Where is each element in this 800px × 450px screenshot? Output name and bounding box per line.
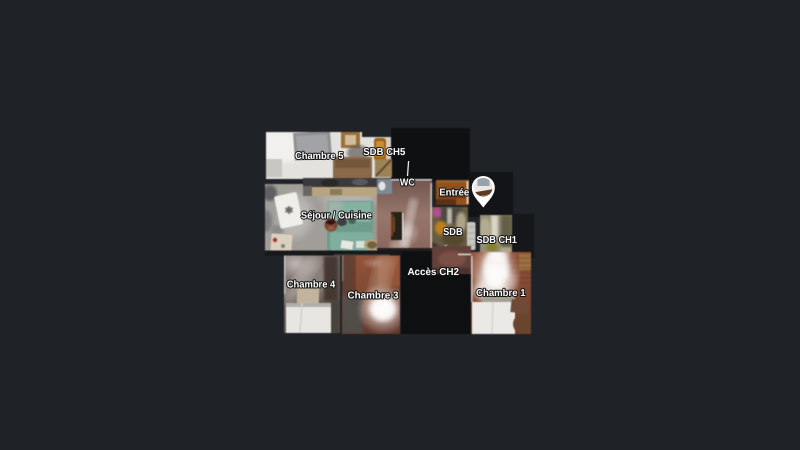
svg-text:SDB CH1: SDB CH1 [476, 235, 517, 246]
svg-text:Chambre 4: Chambre 4 [287, 280, 336, 291]
svg-text:SDB: SDB [443, 227, 463, 238]
svg-text:Accès CH2: Accès CH2 [407, 267, 459, 278]
svg-text:Entrée: Entrée [439, 188, 469, 199]
svg-text:Chambre 3: Chambre 3 [348, 291, 399, 302]
svg-text:Chambre 1: Chambre 1 [476, 288, 526, 299]
svg-text:SDB CH5: SDB CH5 [363, 147, 405, 158]
svg-text:WC: WC [400, 177, 415, 188]
svg-text:Séjour / Cuisine: Séjour / Cuisine [301, 211, 372, 222]
svg-text:Chambre 5: Chambre 5 [295, 151, 344, 162]
